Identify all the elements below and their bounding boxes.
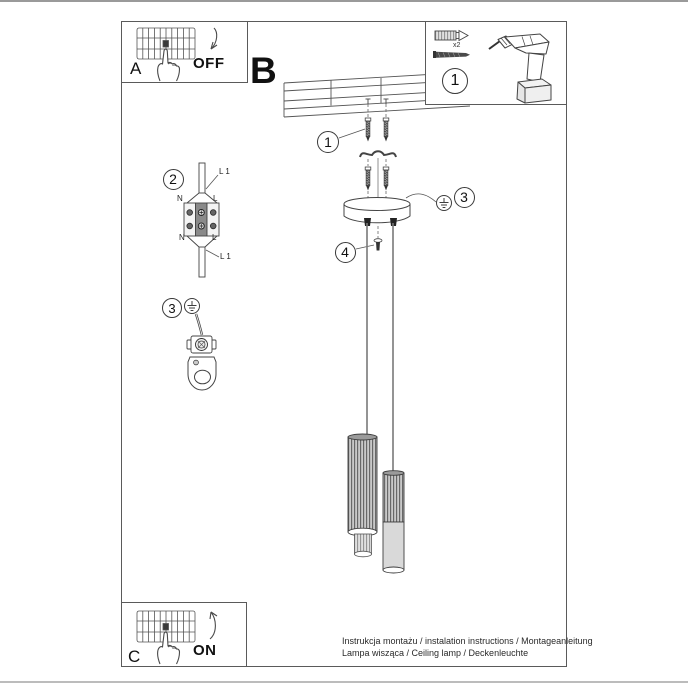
step-1-badge: 1 — [317, 131, 339, 153]
drill-icon — [489, 34, 551, 103]
power-on-label: ON — [193, 642, 217, 659]
wire-label-l-top: L — [213, 194, 217, 203]
canopy-screw — [374, 239, 382, 251]
wire-label-l1-bottom: L 1 — [220, 252, 231, 261]
tools-required-panel: x2 1 — [425, 21, 567, 105]
tools-illustration — [426, 22, 567, 105]
ceiling-canopy — [344, 198, 410, 227]
ground-terminal-assembly — [187, 314, 216, 390]
step-3-right-badge: 3 — [454, 187, 475, 208]
power-on-illustration — [122, 603, 247, 667]
wall-anchor-icon — [435, 31, 468, 41]
instruction-sheet: { "sections": { "a_label": "A", "b_label… — [0, 0, 688, 688]
footer-line-1: Instrukcja montażu / instalation instruc… — [342, 636, 593, 648]
step-3-left-badge: 3 — [162, 298, 182, 318]
mounting-strap — [360, 151, 396, 157]
section-a-label: A — [130, 59, 141, 79]
arrow-down-icon — [211, 28, 217, 49]
step-a-power-off: A OFF — [121, 21, 248, 83]
pendant-lamp-right — [383, 471, 404, 573]
assembly-diagram — [0, 0, 688, 688]
section-c-label: C — [128, 647, 140, 667]
step-2-badge: 2 — [163, 169, 184, 190]
wire-label-n-bottom: N — [179, 233, 185, 242]
section-b-label: B — [250, 52, 277, 89]
anchor-quantity-label: x2 — [453, 42, 460, 49]
screw-icon — [433, 51, 470, 58]
step-4-badge: 4 — [335, 242, 356, 263]
footer-text: Instrukcja montażu / instalation instruc… — [342, 636, 593, 659]
pendant-lamp-left — [348, 434, 377, 557]
tools-step-number: 1 — [442, 68, 468, 94]
power-off-label: OFF — [193, 55, 225, 72]
wire-label-l-bottom: L — [212, 233, 216, 242]
wire-label-n-top: N — [177, 194, 183, 203]
wire-label-l1-top: L 1 — [219, 167, 230, 176]
footer-line-2: Lampa wisząca / Ceiling lamp / Deckenleu… — [342, 648, 593, 660]
arrow-up-icon — [210, 612, 217, 639]
step-c-power-on: C ON — [121, 602, 247, 667]
